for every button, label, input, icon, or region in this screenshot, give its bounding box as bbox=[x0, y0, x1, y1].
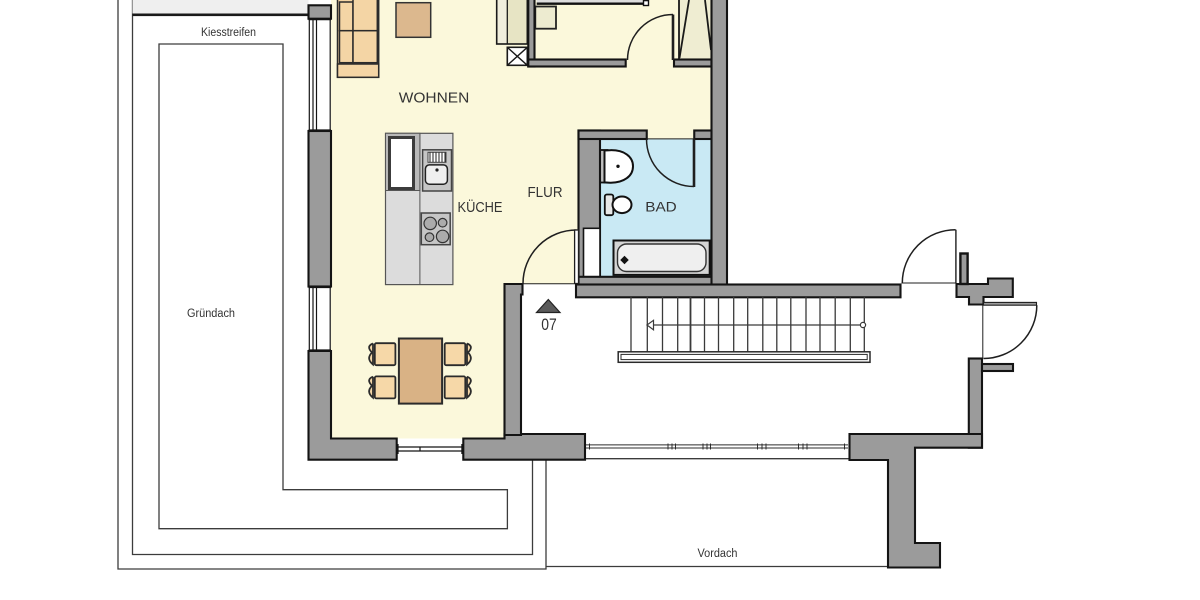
svg-text:WOHNEN: WOHNEN bbox=[399, 89, 470, 106]
svg-text:Vordach: Vordach bbox=[698, 548, 738, 560]
svg-text:KÜCHE: KÜCHE bbox=[458, 198, 503, 216]
svg-text:07: 07 bbox=[541, 316, 557, 334]
svg-text:BAD: BAD bbox=[645, 198, 677, 214]
svg-text:FLUR: FLUR bbox=[528, 185, 563, 201]
svg-text:Gründach: Gründach bbox=[187, 308, 235, 320]
svg-text:Kiesstreifen: Kiesstreifen bbox=[201, 27, 256, 39]
